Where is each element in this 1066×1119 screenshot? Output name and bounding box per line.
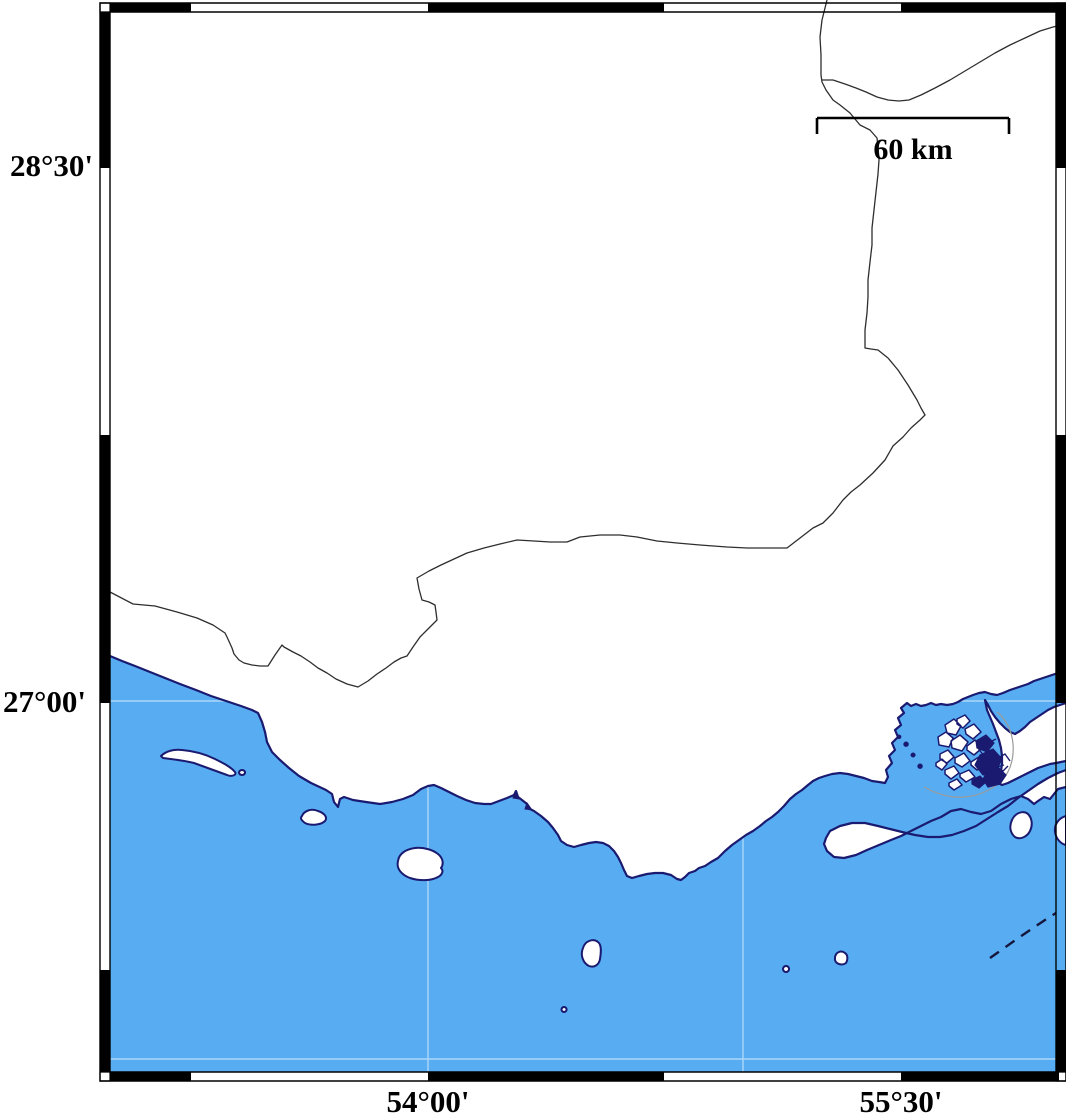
latitude-label-28-30: 28°30' (10, 148, 93, 184)
longitude-label-54-00: 54°00' (348, 1084, 508, 1119)
scale-bar (817, 118, 1009, 134)
mangrove-dense-patches (972, 735, 1006, 788)
scale-bar-label: 60 km (833, 133, 993, 167)
boundary-line-main (110, 0, 925, 687)
boundary-line-branch (822, 24, 1066, 101)
longitude-label-55-30: 55°30' (821, 1084, 981, 1119)
sea-fill (110, 656, 1066, 1072)
map-canvas (0, 0, 1066, 1119)
latitude-label-27-00: 27°00' (3, 684, 86, 720)
map-page: 28°30' 27°00' 54°00' 55°30' 60 km (0, 0, 1066, 1119)
